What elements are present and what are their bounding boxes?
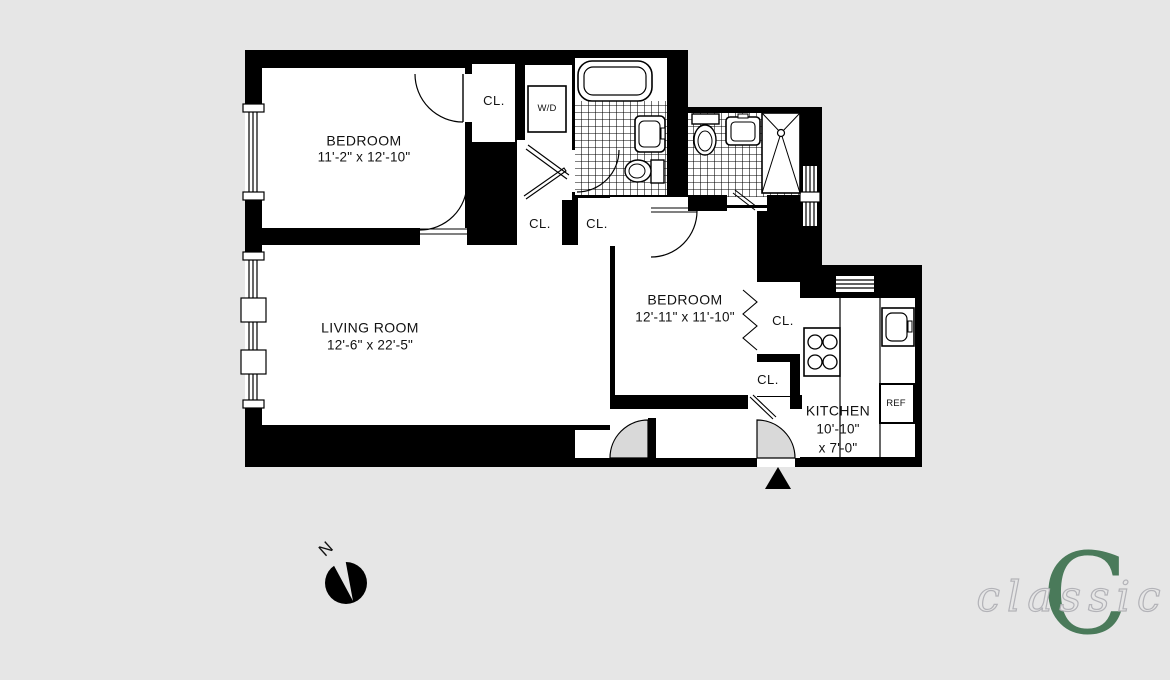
- shower-stall: [762, 113, 800, 193]
- closet-label-hall2: CL.: [586, 216, 608, 232]
- washer-dryer-label: W/D: [537, 103, 556, 115]
- classic-logo: C classic: [1000, 535, 1170, 660]
- living-room-dims: 12'-6" x 22'-5": [327, 338, 413, 355]
- bathroom1-sink: [635, 116, 665, 152]
- closet-label-entry: CL.: [757, 372, 779, 388]
- stove: [804, 328, 840, 376]
- bedroom2-dims: 12'-11" x 11'-10": [635, 310, 734, 327]
- living-room-floor: [262, 245, 610, 425]
- closet-label-bedroom2: CL.: [772, 313, 794, 329]
- bedroom1-window: [243, 104, 264, 200]
- bathroom1-toilet: [625, 160, 664, 183]
- hall-floor: [517, 140, 572, 200]
- kitchen-name: KITCHEN: [806, 402, 870, 420]
- closet-label-hall1: CL.: [529, 216, 551, 232]
- bathroom2-sink: [726, 114, 760, 145]
- floor-plan-page: BEDROOM 11'-2" x 12'-10" LIVING ROOM 12'…: [0, 0, 1170, 680]
- kitchen-sink: [882, 308, 914, 346]
- bedroom1-dims: 11'-2" x 12'-10": [318, 150, 411, 167]
- bedroom2-name: BEDROOM: [647, 291, 722, 309]
- kitchen-dims-line2: x 7'-0": [819, 441, 858, 458]
- logo-script: classic: [976, 576, 1167, 618]
- refrigerator-label: REF: [886, 398, 906, 410]
- kitchen-window: [836, 276, 874, 292]
- bathroom2-window: [800, 166, 820, 226]
- closet-label-bedroom1: CL.: [483, 93, 505, 109]
- living-room-name: LIVING ROOM: [321, 319, 419, 337]
- north-compass-icon: [325, 558, 367, 604]
- entry-arrow-marker: [765, 467, 791, 489]
- kitchen-dims-line1: 10'-10": [816, 422, 859, 439]
- bedroom1-name: BEDROOM: [326, 132, 401, 150]
